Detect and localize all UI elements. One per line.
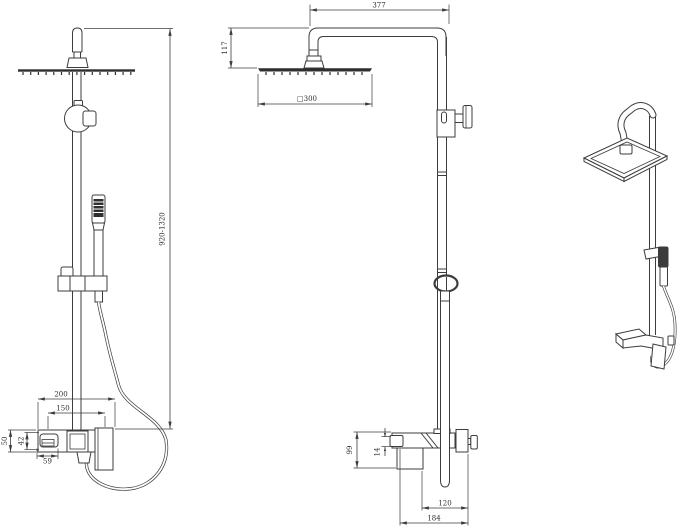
front-dimensions: 920-1320 200 150 50 42 59	[1, 29, 173, 466]
dim-wall-to-handle: 120	[438, 500, 451, 508]
wall-bracket-top	[437, 106, 472, 138]
side-view: 377 117 □300 99 14 120	[221, 2, 477, 526]
dim-wall-to-spout: 184	[427, 515, 441, 523]
diverter-knob	[65, 101, 97, 133]
shower-technical-drawing: 920-1320 200 150 50 42 59	[0, 0, 683, 528]
dim-inner-height: 42	[18, 437, 26, 446]
shower-arm-side	[304, 28, 446, 68]
dim-head-drop: 117	[221, 41, 229, 54]
dim-arm-reach: 377	[372, 2, 385, 10]
dim-overall-width: 200	[54, 391, 67, 399]
drawing-svg: 920-1320 200 150 50 42 59	[0, 0, 683, 528]
rain-head-3d	[584, 138, 667, 182]
dim-head-size: □300	[297, 95, 317, 103]
dim-spout-drop: 14	[374, 447, 382, 456]
rain-head-front	[18, 69, 135, 75]
hand-shower-front	[92, 195, 105, 278]
riser-3d	[650, 114, 656, 337]
dim-height-range: 920-1320	[159, 212, 167, 246]
hand-shower-side	[441, 291, 450, 487]
front-view: 920-1320 200 150 50 42 59	[1, 28, 173, 489]
dim-spout-width: 59	[43, 458, 52, 466]
faucet-side	[390, 429, 477, 469]
perspective-view	[584, 106, 675, 369]
riser-pole	[67, 28, 88, 431]
dim-inlet-spacing: 150	[56, 405, 69, 413]
rain-head-side	[258, 68, 372, 75]
dim-body-drop: 99	[346, 446, 354, 455]
dim-body-height: 50	[1, 437, 9, 446]
slider-clamp-side	[435, 276, 458, 292]
